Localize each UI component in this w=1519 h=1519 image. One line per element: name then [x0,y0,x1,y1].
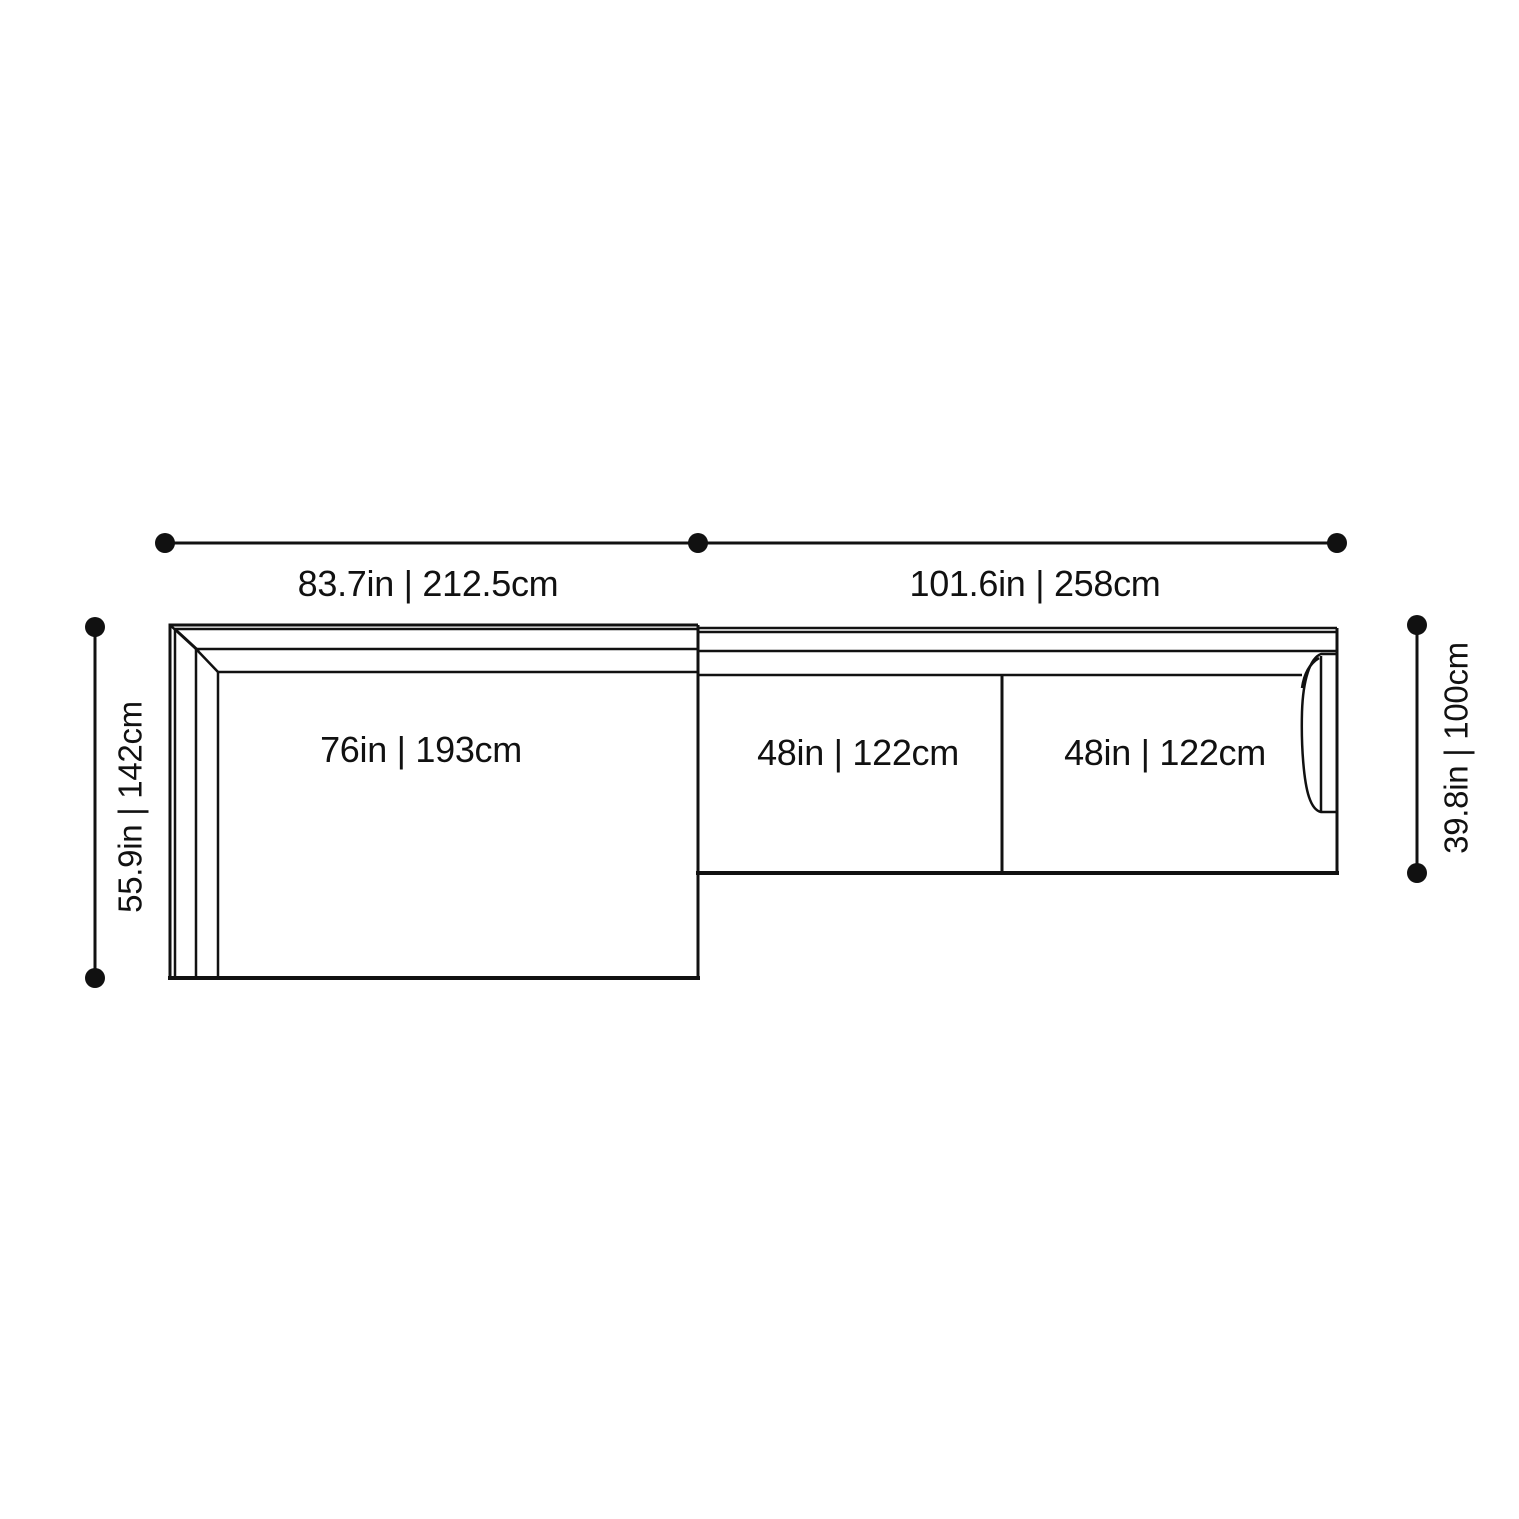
left-depth-label: 55.9in | 142cm [114,701,147,913]
dimension-dot [1407,615,1427,635]
chaise-module-outline [168,625,700,978]
middle-seat-size-label: 48in | 122cm [757,735,959,771]
chaise-outer-edge [170,625,698,978]
dimension-dot [85,617,105,637]
right-dimension-line [1407,615,1427,883]
chaise-size-label: 76in | 193cm [320,732,522,768]
dimension-diagram: 83.7in | 212.5cm 101.6in | 258cm 55.9in … [0,0,1519,1519]
dimension-dot [85,968,105,988]
dimension-dot [1327,533,1347,553]
chaise-corner-miter [196,649,218,672]
left-dimension-line [85,617,105,988]
dimension-dot [155,533,175,553]
right-depth-label: 39.8in | 100cm [1440,642,1473,854]
top-right-width-label: 101.6in | 258cm [909,566,1160,602]
arm-bolster-outline [1302,654,1337,812]
dimension-dot [688,533,708,553]
chaise-corner-miter [175,629,199,651]
dimension-dot [1407,863,1427,883]
top-dimension-lines [155,533,1347,553]
right-seat-size-label: 48in | 122cm [1064,735,1266,771]
top-left-width-label: 83.7in | 212.5cm [298,566,559,602]
